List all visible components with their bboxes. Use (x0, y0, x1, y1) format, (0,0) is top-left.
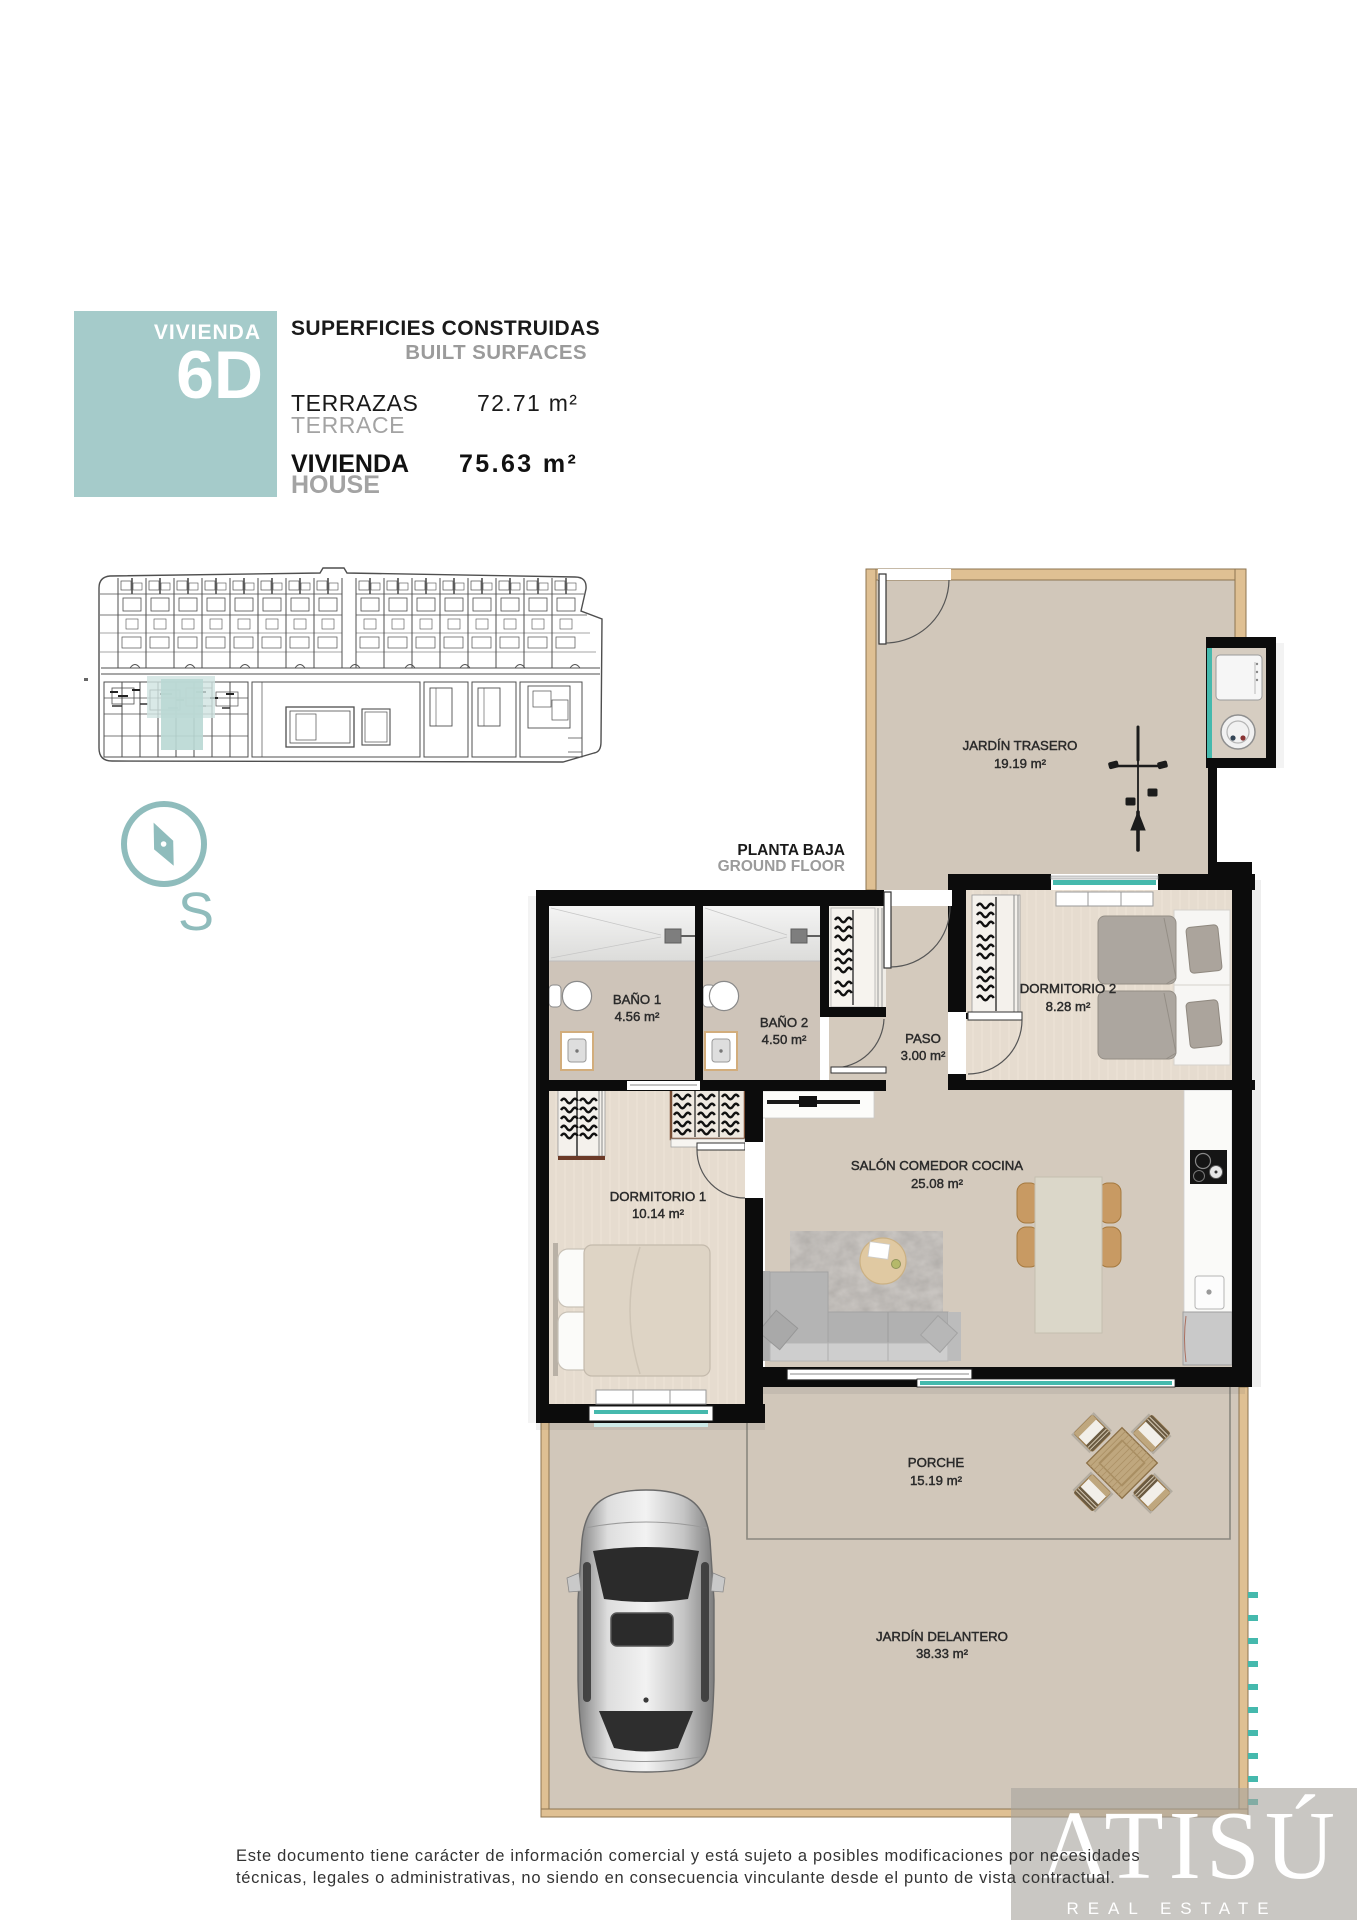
svg-text:38.33 m²: 38.33 m² (916, 1646, 969, 1661)
svg-text:75.63 m²: 75.63 m² (459, 450, 578, 478)
svg-text:PORCHE: PORCHE (908, 1455, 965, 1470)
svg-text:4.56 m²: 4.56 m² (615, 1009, 660, 1024)
svg-text:JARDÍN TRASERO: JARDÍN TRASERO (963, 738, 1078, 753)
svg-text:S: S (178, 882, 214, 942)
svg-text:PLANTA BAJA: PLANTA BAJA (737, 842, 845, 859)
svg-text:8.28 m²: 8.28 m² (1046, 999, 1091, 1014)
svg-text:BAÑO 1: BAÑO 1 (613, 992, 661, 1007)
svg-text:19.19 m²: 19.19 m² (994, 756, 1047, 771)
svg-text:REAL ESTATE: REAL ESTATE (1066, 1899, 1277, 1918)
svg-text:HOUSE: HOUSE (291, 471, 380, 499)
svg-text:PASO: PASO (905, 1031, 941, 1046)
svg-text:SALÓN COMEDOR COCINA: SALÓN COMEDOR COCINA (851, 1158, 1023, 1173)
svg-text:DORMITORIO 2: DORMITORIO 2 (1020, 981, 1116, 996)
svg-text:BUILT SURFACES: BUILT SURFACES (405, 341, 587, 364)
svg-text:BAÑO 2: BAÑO 2 (760, 1015, 808, 1030)
svg-text:JARDÍN DELANTERO: JARDÍN DELANTERO (876, 1629, 1008, 1644)
svg-text:6D: 6D (176, 337, 263, 413)
svg-text:TERRACE: TERRACE (291, 412, 405, 438)
svg-text:técnicas, legales o administra: técnicas, legales o administrativas, no … (236, 1869, 1116, 1887)
svg-text:72.71 m²: 72.71 m² (477, 390, 578, 416)
svg-text:25.08 m²: 25.08 m² (911, 1176, 964, 1191)
svg-text:SUPERFICIES CONSTRUIDAS: SUPERFICIES CONSTRUIDAS (291, 317, 600, 340)
svg-text:10.14 m²: 10.14 m² (632, 1206, 685, 1221)
svg-text:GROUND FLOOR: GROUND FLOOR (718, 858, 845, 875)
svg-text:4.50 m²: 4.50 m² (762, 1032, 807, 1047)
svg-text:3.00 m²: 3.00 m² (901, 1048, 946, 1063)
svg-text:DORMITORIO 1: DORMITORIO 1 (610, 1189, 706, 1204)
svg-text:Este documento tiene carácter: Este documento tiene carácter de informa… (236, 1847, 1140, 1865)
svg-text:15.19 m²: 15.19 m² (910, 1473, 963, 1488)
